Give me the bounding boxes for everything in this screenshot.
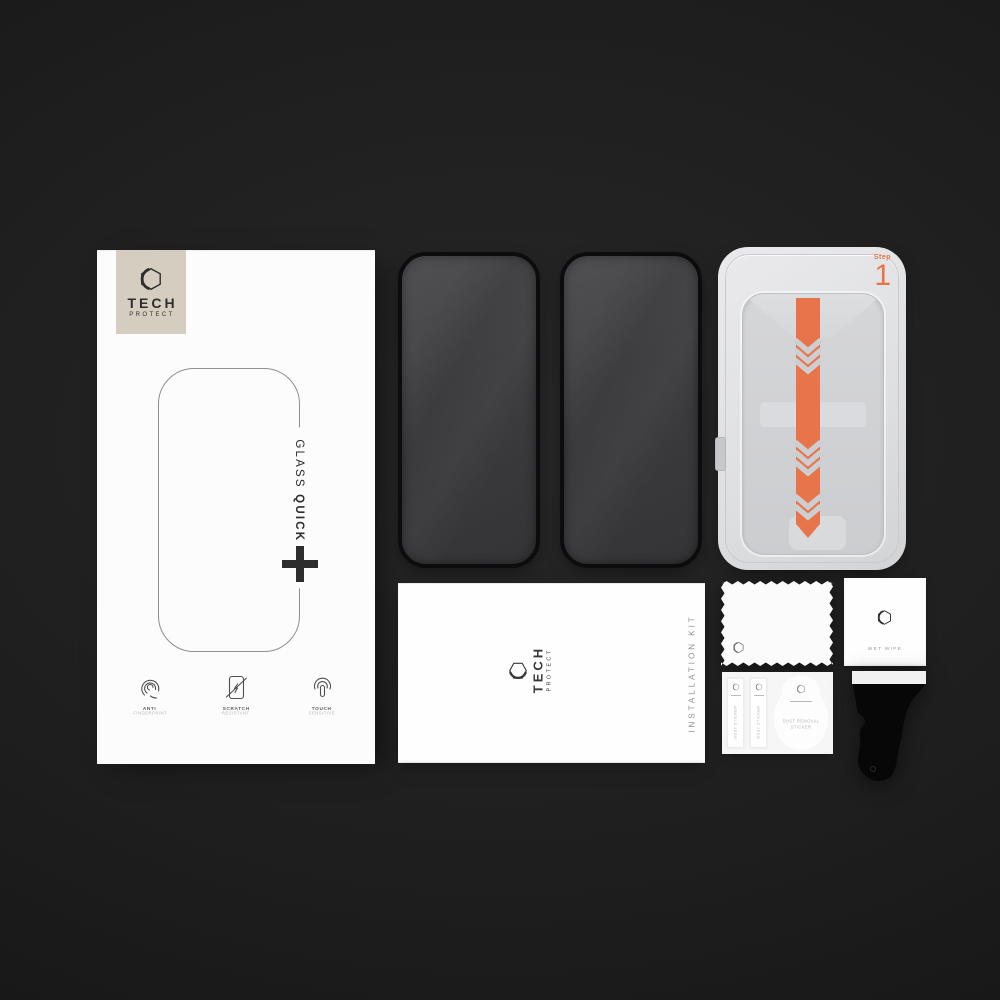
brand-subname: PROTECT xyxy=(547,648,553,691)
plus-icon xyxy=(281,545,319,583)
hexagon-logo-icon xyxy=(732,641,745,654)
hexagon-logo-icon xyxy=(508,661,529,682)
dust-sticker-strip: DUST STICKER xyxy=(727,678,744,748)
hexagon-logo-icon xyxy=(755,683,763,691)
feature-touch-sensitive: TOUCH SENSITIVE xyxy=(291,674,353,717)
installation-kit-envelope: TECH PROTECT INSTALLATION KIT xyxy=(398,583,705,763)
microfiber-cloth xyxy=(721,581,833,666)
tempered-glass-1 xyxy=(398,252,540,568)
installation-kit-label: INSTALLATION KIT xyxy=(683,583,701,763)
step-number: 1 xyxy=(874,261,891,291)
divider xyxy=(790,701,812,702)
brand-name: TECH xyxy=(531,646,546,693)
dust-sticker-strip: DUST STICKER xyxy=(750,678,767,748)
scratch-resistant-icon xyxy=(223,674,250,702)
squeegee-shape xyxy=(846,668,930,793)
phone-outline-drawing xyxy=(158,368,300,652)
tray-side-notch xyxy=(715,437,726,471)
chevron-down-arrows-icon xyxy=(795,298,821,544)
applicator-tray: Step 1 xyxy=(718,247,906,570)
box-title-glass: GLASS xyxy=(293,439,305,488)
touch-sensitive-icon xyxy=(309,674,336,702)
hexagon-logo-icon xyxy=(138,266,164,292)
feature-scratch-resistant: SCRATCH RESISTANT xyxy=(205,674,267,717)
hexagon-logo-icon xyxy=(732,683,740,691)
retail-box: TECH PROTECT GLASS QUICK SET ANTI FINGER… xyxy=(97,250,375,764)
dust-sticker-label: DUST STICKER xyxy=(734,705,738,738)
feature-icon-row: ANTI FINGERPRINT SCRATCH RESISTANT TOU xyxy=(97,674,375,717)
dust-removal-label: DUST REMOVAL STICKER xyxy=(781,719,820,731)
hexagon-logo-icon xyxy=(796,684,806,694)
glass-reflection xyxy=(402,256,536,564)
hexagon-logo-icon xyxy=(876,609,893,626)
wet-wipe-sachet: WET WIPE xyxy=(844,578,926,666)
tempered-glass-2 xyxy=(560,252,702,568)
dust-sticker-card: DUST STICKER DUST STICKER DUST REMOVAL S… xyxy=(722,672,833,754)
fingerprint-icon xyxy=(137,674,164,702)
product-photo-scene: TECH PROTECT GLASS QUICK SET ANTI FINGER… xyxy=(0,0,1000,1000)
feature-anti-fingerprint: ANTI FINGERPRINT xyxy=(119,674,181,717)
divider xyxy=(754,695,764,696)
squeegee-felt-edge xyxy=(852,671,926,684)
step-badge: Step 1 xyxy=(874,254,891,291)
dust-removal-sticker: DUST REMOVAL STICKER xyxy=(772,674,830,752)
dust-sticker-label: DUST STICKER xyxy=(757,705,761,738)
brand-label: TECH PROTECT xyxy=(116,250,186,334)
brand-subname: PROTECT xyxy=(129,312,174,318)
brand-name: TECH xyxy=(127,295,177,311)
squeegee-tool xyxy=(846,668,930,793)
glass-reflection xyxy=(564,256,698,564)
wet-wipe-label: WET WIPE xyxy=(852,647,918,652)
divider xyxy=(731,695,741,696)
